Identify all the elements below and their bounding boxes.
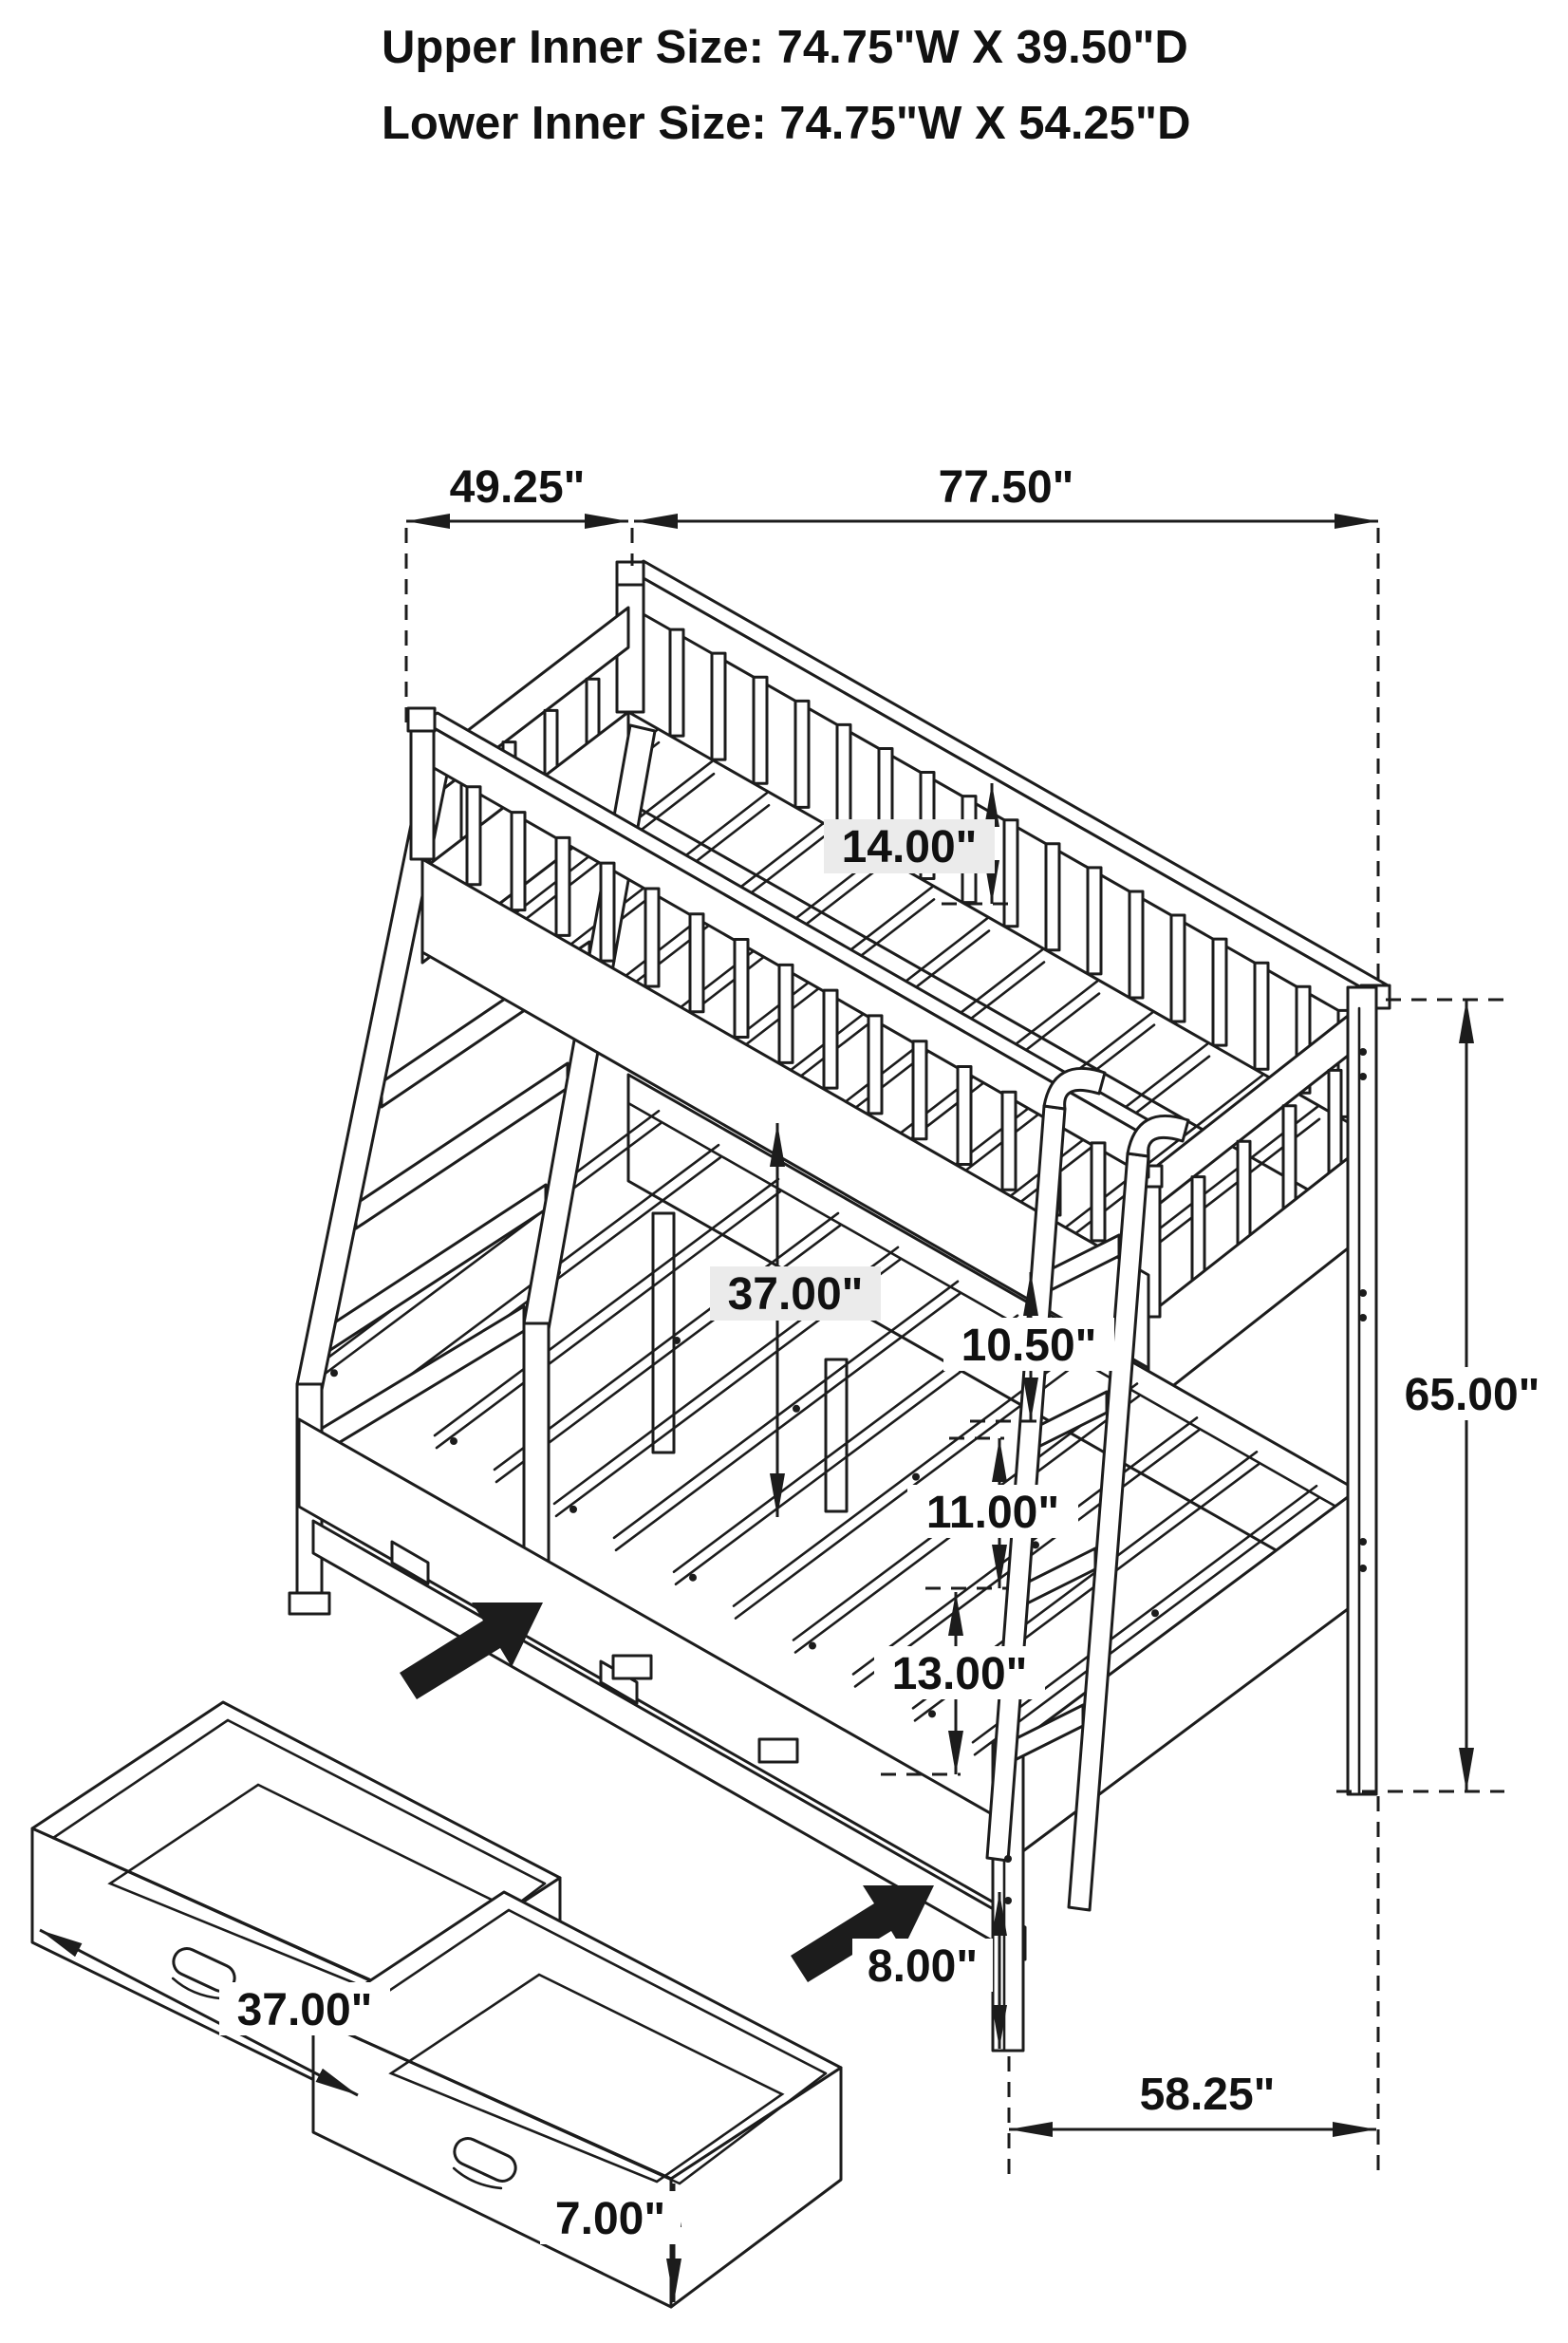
dim-under-bed-clearance: 8.00" xyxy=(868,1941,978,1992)
dim-overall-length: 77.50" xyxy=(939,462,1074,513)
title-upper-inner-size: Upper Inner Size: 74.75"W X 39.50"D xyxy=(382,22,1188,73)
dim-upper-bunk-width: 49.25" xyxy=(450,462,586,513)
dim-overall-height: 65.00" xyxy=(1405,1370,1540,1420)
dim-drawer-width: 37.00" xyxy=(237,1985,373,2035)
dim-ladder-step-bottom: 13.00" xyxy=(892,1649,1028,1699)
diagram-canvas: 49.25" 77.50" 14.00" 37.00" 10.50" 11.00… xyxy=(0,0,1568,2343)
dim-ladder-step-middle: 11.00" xyxy=(926,1488,1059,1538)
dim-drawer-height: 7.00" xyxy=(555,2194,665,2244)
dim-guardrail-height: 14.00" xyxy=(842,822,978,872)
bunk-bed-dimension-diagram: 49.25" 77.50" 14.00" 37.00" 10.50" 11.00… xyxy=(0,0,1568,2343)
dim-bunk-clearance: 37.00" xyxy=(728,1269,864,1320)
title-lower-inner-size: Lower Inner Size: 74.75"W X 54.25"D xyxy=(382,98,1191,149)
dim-ladder-step-top: 10.50" xyxy=(961,1321,1097,1371)
dim-lower-bunk-depth: 58.25" xyxy=(1140,2070,1276,2120)
